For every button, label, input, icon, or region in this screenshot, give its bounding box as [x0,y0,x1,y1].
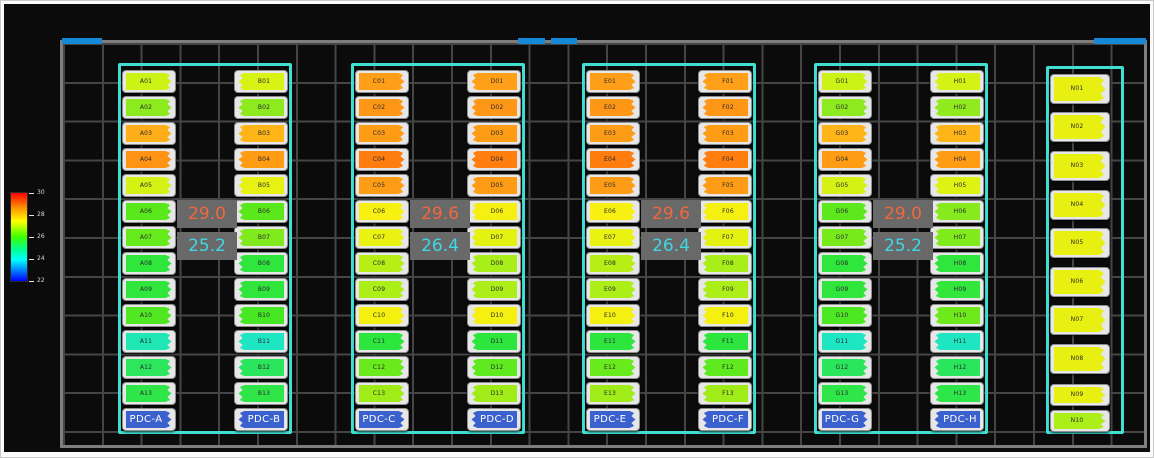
rack-unit[interactable]: D02 [467,96,521,119]
rack-unit[interactable]: C09 [355,278,409,301]
rack-unit[interactable]: B08 [234,252,288,275]
pdc-unit[interactable]: PDC-B [234,408,288,431]
rack-unit-fill: B01 [238,73,284,90]
rack-unit[interactable]: A11 [122,330,176,353]
rack-unit[interactable]: B02 [234,96,288,119]
rack-unit[interactable]: F06 [698,200,752,223]
rack-unit-label: F12 [722,365,734,371]
rack-unit-label: F13 [722,391,734,397]
rack-unit-label: A08 [140,261,152,267]
rack-unit[interactable]: H01 [930,70,984,93]
rack-unit-fill: F06 [702,203,748,220]
rack-unit-label: C04 [373,157,385,163]
rack-unit[interactable]: G06 [818,200,872,223]
rack-unit-label: H07 [954,235,967,241]
rack-unit[interactable]: E03 [586,122,640,145]
rack-unit-label: A09 [140,287,152,293]
pdc-unit-label: PDC-G [825,415,859,425]
rack-unit[interactable]: N07 [1050,305,1110,335]
rack-unit[interactable]: H05 [930,174,984,197]
rack-unit-fill: A07 [126,229,172,246]
rack-unit-label: N10 [1071,418,1084,424]
rack-unit-fill: D02 [471,99,517,116]
rack-unit[interactable]: G07 [818,226,872,249]
rack-unit[interactable]: F04 [698,148,752,171]
rack-unit[interactable]: H03 [930,122,984,145]
rack-unit[interactable]: E12 [586,356,640,379]
legend-tick-label: 26 [37,234,45,240]
rack-unit[interactable]: F08 [698,252,752,275]
rack-unit-fill: H01 [934,73,980,90]
rack-unit[interactable]: N02 [1050,112,1110,142]
rack-unit-label: E04 [604,157,616,163]
rack-unit[interactable]: D03 [467,122,521,145]
pdc-unit-fill: PDC-G [822,411,868,428]
legend-tick [29,281,34,282]
rack-unit-fill: E11 [590,333,636,350]
rack-unit-fill: G10 [822,307,868,324]
rack-unit-label: E07 [604,235,616,241]
pdc-unit[interactable]: PDC-F [698,408,752,431]
rack-unit-fill: N04 [1054,193,1106,217]
pdc-unit-fill: PDC-C [359,411,405,428]
rack-unit-fill: H13 [934,385,980,402]
rack-unit-label: A12 [140,365,152,371]
rack-unit-label: D08 [491,261,504,267]
rack-unit-label: H09 [954,287,967,293]
pdc-unit-fill: PDC-B [238,411,284,428]
rack-unit[interactable]: E13 [586,382,640,405]
rack-unit-fill: A10 [126,307,172,324]
rack-unit-fill: A11 [126,333,172,350]
rack-unit[interactable]: D11 [467,330,521,353]
rack-unit-label: A05 [140,183,152,189]
rack-unit[interactable]: N09 [1050,384,1110,406]
aisle-temp-cold: 25.2 [873,232,933,260]
rack-unit[interactable]: E04 [586,148,640,171]
rack-unit[interactable]: B10 [234,304,288,327]
rack-unit[interactable]: C06 [355,200,409,223]
rack-unit-label: D06 [491,209,504,215]
rack-unit[interactable]: D09 [467,278,521,301]
rack-unit[interactable]: B03 [234,122,288,145]
rack-unit-label: C10 [373,313,385,319]
rack-unit-label: B06 [258,209,270,215]
rack-unit[interactable]: N06 [1050,267,1110,297]
rack-unit-fill: N05 [1054,231,1106,255]
rack-unit-fill: F05 [702,177,748,194]
rack-unit-fill: D06 [471,203,517,220]
rack-unit-label: B13 [258,391,270,397]
rack-unit[interactable]: H02 [930,96,984,119]
pdc-unit[interactable]: PDC-C [355,408,409,431]
rack-unit[interactable]: B11 [234,330,288,353]
rack-unit[interactable]: D07 [467,226,521,249]
rack-unit[interactable]: G04 [818,148,872,171]
rack-unit-fill: B12 [238,359,284,376]
rack-unit-label: C03 [373,131,385,137]
rack-unit[interactable]: N10 [1050,410,1110,432]
rack-unit-fill: D08 [471,255,517,272]
rack-unit-fill: E03 [590,125,636,142]
rack-unit[interactable]: E11 [586,330,640,353]
rack-unit-fill: H10 [934,307,980,324]
rack-unit-label: G04 [836,157,849,163]
rack-unit-label: B01 [258,79,270,85]
rack-unit-fill: A13 [126,385,172,402]
rack-unit-fill: N01 [1054,77,1106,101]
aisle-temp-cold: 26.4 [410,232,470,260]
rack-unit-fill: H09 [934,281,980,298]
rack-unit-label: A13 [140,391,152,397]
rack-unit[interactable]: F05 [698,174,752,197]
rack-unit-fill: B09 [238,281,284,298]
rack-unit[interactable]: F11 [698,330,752,353]
rack-unit-fill: B08 [238,255,284,272]
rack-unit-label: N09 [1071,392,1084,398]
rack-unit-fill: A02 [126,99,172,116]
rack-unit[interactable]: F03 [698,122,752,145]
rack-unit[interactable]: D13 [467,382,521,405]
legend-tick-label: 30 [37,190,45,196]
rack-unit[interactable]: B05 [234,174,288,197]
rack-unit[interactable]: G12 [818,356,872,379]
rack-unit-label: B10 [258,313,270,319]
rack-unit[interactable]: H13 [930,382,984,405]
rack-unit[interactable]: D10 [467,304,521,327]
rack-unit-label: B02 [258,105,270,111]
rack-unit-fill: B04 [238,151,284,168]
rack-unit[interactable]: N04 [1050,190,1110,220]
rack-unit-label: F07 [722,235,734,241]
rack-unit[interactable]: E02 [586,96,640,119]
rack-unit-label: D13 [491,391,504,397]
rack-unit-fill: C09 [359,281,405,298]
rack-unit-label: B11 [258,339,270,345]
rack-unit[interactable]: G01 [818,70,872,93]
rack-unit[interactable]: G05 [818,174,872,197]
rack-unit-label: G06 [836,209,849,215]
rack-unit-label: G01 [836,79,849,85]
rack-unit[interactable]: C03 [355,122,409,145]
rack-unit[interactable]: E07 [586,226,640,249]
rack-unit[interactable]: A08 [122,252,176,275]
rack-unit[interactable]: A13 [122,382,176,405]
rack-unit-fill: G08 [822,255,868,272]
aisle-temp-hot: 29.6 [641,200,701,228]
rack-unit[interactable]: A03 [122,122,176,145]
rack-unit[interactable]: A06 [122,200,176,223]
thermal-floorplan: A01A02A03A04A05A06A07A08A09A10A11A12A13P… [0,0,1154,458]
rack-unit[interactable]: C04 [355,148,409,171]
rack-unit-label: A04 [140,157,152,163]
rack-unit[interactable]: E05 [586,174,640,197]
rack-unit-label: H10 [954,313,967,319]
rack-unit[interactable]: E10 [586,304,640,327]
legend-tick [29,259,34,260]
rack-unit-label: D12 [491,365,504,371]
rack-unit-label: A01 [140,79,152,85]
rack-unit-fill: N10 [1054,413,1106,429]
rack-unit-fill: F02 [702,99,748,116]
pdc-unit-label: PDC-E [594,415,627,425]
rack-unit[interactable]: B09 [234,278,288,301]
rack-unit[interactable]: B06 [234,200,288,223]
rack-unit-fill: G13 [822,385,868,402]
rack-unit-fill: B07 [238,229,284,246]
rack-unit-label: B05 [258,183,270,189]
rack-unit[interactable]: C02 [355,96,409,119]
rack-unit-fill: G06 [822,203,868,220]
rack-unit-fill: E13 [590,385,636,402]
rack-unit[interactable]: D05 [467,174,521,197]
rack-unit[interactable]: F09 [698,278,752,301]
aisle-temp-hot: 29.0 [177,200,237,228]
rack-unit[interactable]: G10 [818,304,872,327]
rack-unit-label: N06 [1071,279,1084,285]
rack-unit-fill: G07 [822,229,868,246]
rack-unit[interactable]: C08 [355,252,409,275]
rack-unit-fill: C10 [359,307,405,324]
legend-tick-label: 28 [37,212,45,218]
rack-unit-label: G07 [836,235,849,241]
legend-tick [29,215,34,216]
rack-unit-fill: C03 [359,125,405,142]
rack-unit-label: C08 [373,261,385,267]
rack-unit-fill: C01 [359,73,405,90]
pdc-unit[interactable]: PDC-H [930,408,984,431]
rack-unit-label: F02 [722,105,734,111]
pdc-unit[interactable]: PDC-G [818,408,872,431]
rack-unit[interactable]: E08 [586,252,640,275]
rack-unit[interactable]: E01 [586,70,640,93]
rack-unit-fill: G01 [822,73,868,90]
rack-unit-label: F10 [722,313,734,319]
rack-unit-label: G02 [836,105,849,111]
rack-unit-fill: F13 [702,385,748,402]
rack-unit-fill: E06 [590,203,636,220]
pdc-unit-fill: PDC-D [471,411,517,428]
rack-unit[interactable]: C05 [355,174,409,197]
rack-unit-fill: H08 [934,255,980,272]
rack-unit-fill: B10 [238,307,284,324]
rack-unit[interactable]: H07 [930,226,984,249]
rack-unit[interactable]: A09 [122,278,176,301]
rack-unit-label: N05 [1071,240,1084,246]
rack-unit-fill: C11 [359,333,405,350]
rack-unit-label: D01 [491,79,504,85]
rack-unit[interactable]: F02 [698,96,752,119]
rack-unit-fill: D10 [471,307,517,324]
rack-unit-label: N07 [1071,317,1084,323]
rack-unit[interactable]: H12 [930,356,984,379]
rack-unit-label: C11 [373,339,385,345]
rack-unit-fill: B03 [238,125,284,142]
rack-unit-fill: E02 [590,99,636,116]
rack-unit[interactable]: H04 [930,148,984,171]
rack-unit-fill: C05 [359,177,405,194]
rack-unit-label: E08 [604,261,616,267]
rack-unit-label: G10 [836,313,849,319]
rack-unit-label: A07 [140,235,152,241]
rack-unit[interactable]: G02 [818,96,872,119]
rack-unit[interactable]: A10 [122,304,176,327]
rack-unit[interactable]: G13 [818,382,872,405]
rack-unit-label: B04 [258,157,270,163]
rack-unit-label: B08 [258,261,270,267]
rack-unit[interactable]: B04 [234,148,288,171]
rack-unit[interactable]: E09 [586,278,640,301]
rack-unit[interactable]: N03 [1050,151,1110,181]
rack-unit-label: D10 [491,313,504,319]
rack-unit-fill: C12 [359,359,405,376]
rack-unit[interactable]: C07 [355,226,409,249]
rack-unit-label: H05 [954,183,967,189]
rack-unit[interactable]: D06 [467,200,521,223]
rack-unit-label: N03 [1071,163,1084,169]
rack-unit-fill: A05 [126,177,172,194]
rack-unit-label: E13 [604,391,616,397]
legend-tick-label: 22 [37,278,45,284]
rack-unit[interactable]: F07 [698,226,752,249]
rack-unit[interactable]: A02 [122,96,176,119]
rack-unit[interactable]: G11 [818,330,872,353]
rack-unit[interactable]: F12 [698,356,752,379]
legend-tick-label: 24 [37,256,45,262]
rack-unit-label: H02 [954,105,967,111]
rack-unit[interactable]: B13 [234,382,288,405]
rack-unit-fill: H05 [934,177,980,194]
rack-unit[interactable]: F13 [698,382,752,405]
pdc-unit-fill: PDC-H [934,411,980,428]
rack-unit-label: E01 [604,79,616,85]
rack-unit-label: A06 [140,209,152,215]
rack-unit-label: F06 [722,209,734,215]
rack-unit[interactable]: H10 [930,304,984,327]
rack-unit-fill: B05 [238,177,284,194]
pdc-unit-fill: PDC-F [702,411,748,428]
rack-unit-fill: G02 [822,99,868,116]
legend-colorbar [11,193,27,281]
rack-unit[interactable]: C10 [355,304,409,327]
rack-unit-label: A10 [140,313,152,319]
rack-unit-fill: C06 [359,203,405,220]
pdc-unit[interactable]: PDC-A [122,408,176,431]
rack-unit-fill: E08 [590,255,636,272]
rack-unit[interactable]: G08 [818,252,872,275]
rack-unit[interactable]: H08 [930,252,984,275]
rack-unit[interactable]: H06 [930,200,984,223]
rack-unit[interactable]: H11 [930,330,984,353]
rack-unit-fill: G11 [822,333,868,350]
aisle-temp-hot: 29.6 [410,200,470,228]
rack-unit[interactable]: A01 [122,70,176,93]
rack-unit-label: D09 [491,287,504,293]
rack-unit-fill: N06 [1054,270,1106,294]
rack-unit[interactable]: H09 [930,278,984,301]
pdc-unit[interactable]: PDC-D [467,408,521,431]
pdc-unit[interactable]: PDC-E [586,408,640,431]
rack-unit-fill: H11 [934,333,980,350]
rack-unit-label: N04 [1071,202,1084,208]
rack-unit-fill: N02 [1054,115,1106,139]
rack-unit-label: G13 [836,391,849,397]
pdc-unit-label: PDC-B [248,415,281,425]
rack-unit[interactable]: E06 [586,200,640,223]
rack-unit[interactable]: D04 [467,148,521,171]
rack-unit[interactable]: B12 [234,356,288,379]
rack-unit-label: F08 [722,261,734,267]
rack-unit[interactable]: B07 [234,226,288,249]
rack-unit-label: G09 [836,287,849,293]
rack-unit[interactable]: A05 [122,174,176,197]
rack-unit-fill: D01 [471,73,517,90]
rack-unit[interactable]: A12 [122,356,176,379]
rack-unit-fill: A01 [126,73,172,90]
rack-unit-fill: H12 [934,359,980,376]
rack-unit[interactable]: N01 [1050,74,1110,104]
rack-unit-label: D03 [491,131,504,137]
door-segment-1 [518,38,545,44]
rack-unit-label: G03 [836,131,849,137]
rack-unit-label: H11 [954,339,967,345]
rack-unit-fill: G05 [822,177,868,194]
rack-unit[interactable]: D01 [467,70,521,93]
rack-unit-fill: B11 [238,333,284,350]
rack-unit-label: C05 [373,183,385,189]
rack-unit[interactable]: F10 [698,304,752,327]
rack-unit[interactable]: G09 [818,278,872,301]
rack-unit-label: N01 [1071,86,1084,92]
rack-unit-label: B03 [258,131,270,137]
rack-unit-fill: G03 [822,125,868,142]
rack-unit-fill: A09 [126,281,172,298]
legend-tick [29,193,34,194]
rack-unit-label: E06 [604,209,616,215]
rack-unit[interactable]: F01 [698,70,752,93]
rack-unit-fill: H06 [934,203,980,220]
rack-unit-label: D02 [491,105,504,111]
rack-unit[interactable]: N08 [1050,344,1110,374]
rack-unit-fill: A06 [126,203,172,220]
rack-unit-fill: F01 [702,73,748,90]
rack-unit[interactable]: C12 [355,356,409,379]
rack-unit[interactable]: D12 [467,356,521,379]
door-segment-3 [1094,38,1146,44]
rack-unit-fill: F10 [702,307,748,324]
rack-unit-fill: A03 [126,125,172,142]
rack-unit-fill: G04 [822,151,868,168]
rack-unit-label: E12 [604,365,616,371]
rack-unit[interactable]: A04 [122,148,176,171]
rack-unit[interactable]: D08 [467,252,521,275]
rack-unit-label: D04 [491,157,504,163]
rack-unit[interactable]: C13 [355,382,409,405]
rack-unit-fill: H04 [934,151,980,168]
rack-unit-fill: F07 [702,229,748,246]
rack-unit[interactable]: A07 [122,226,176,249]
rack-unit[interactable]: N05 [1050,228,1110,258]
rack-unit-fill: F11 [702,333,748,350]
rack-unit-label: E10 [604,313,616,319]
rack-unit-label: E03 [604,131,616,137]
rack-unit[interactable]: C01 [355,70,409,93]
rack-unit[interactable]: G03 [818,122,872,145]
legend-tick [29,237,34,238]
rack-unit[interactable]: B01 [234,70,288,93]
rack-unit[interactable]: C11 [355,330,409,353]
rack-unit-fill: C07 [359,229,405,246]
